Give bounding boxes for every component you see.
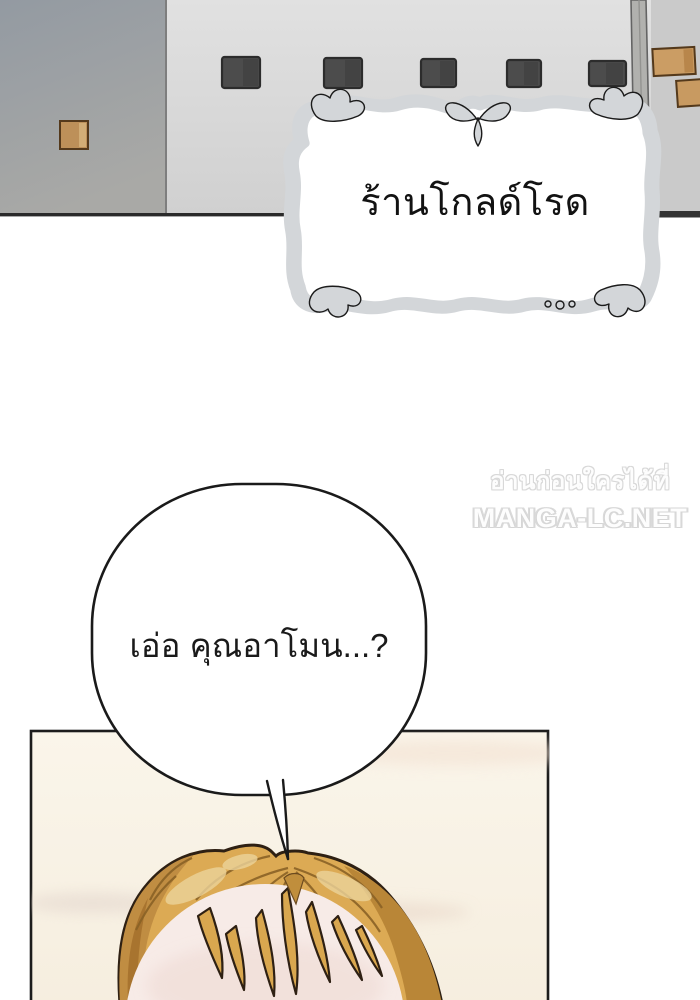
webtoon-page: ร้านโกลด์โรด อ่านก่อนใครได้ที่ MANGA-LC.… — [0, 0, 700, 1000]
wall-left-dark — [0, 0, 166, 216]
watermark-thai-line: อ่านก่อนใครได้ที่ — [452, 461, 700, 500]
crate-icon — [652, 47, 695, 76]
crate-icon — [676, 79, 700, 107]
shop-sign-text: ร้านโกลด์โรด — [295, 182, 655, 226]
crate-icon — [60, 121, 88, 149]
watermark: อ่านก่อนใครได้ที่ MANGA-LC.NET — [452, 461, 700, 534]
speech-bubble-text: เอ่อ คุณอาโมน...? — [92, 627, 426, 665]
watermark-site-name: MANGA-LC.NET — [452, 503, 700, 534]
